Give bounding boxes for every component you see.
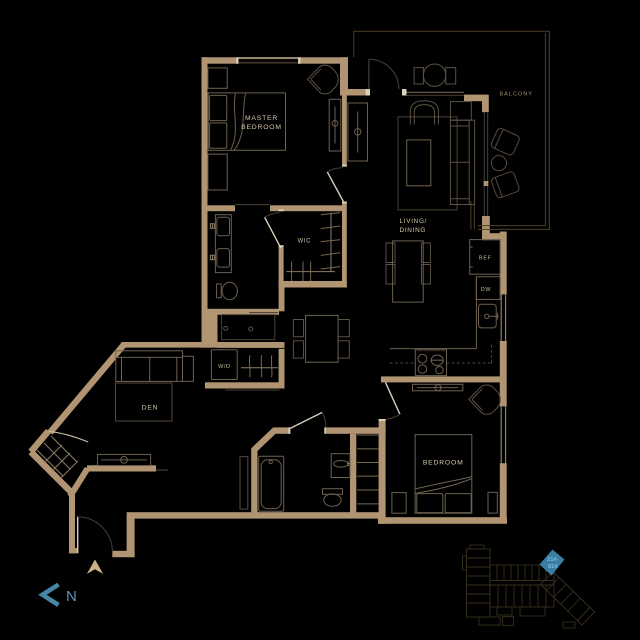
svg-text:N: N <box>66 588 77 605</box>
svg-text:DINING: DINING <box>400 227 427 234</box>
svg-text:814: 814 <box>548 564 558 570</box>
svg-text:BALCONY: BALCONY <box>499 91 532 97</box>
svg-text:BEDROOM: BEDROOM <box>423 459 464 466</box>
svg-text:214-: 214- <box>547 557 559 563</box>
svg-text:LIVING/: LIVING/ <box>400 218 428 225</box>
svg-text:MASTER: MASTER <box>245 115 278 122</box>
svg-text:DEN: DEN <box>142 404 159 411</box>
svg-text:W/D: W/D <box>218 364 230 370</box>
svg-text:REF: REF <box>479 256 492 262</box>
svg-text:WIC: WIC <box>298 239 312 245</box>
svg-text:DW: DW <box>481 287 492 293</box>
svg-text:BEDROOM: BEDROOM <box>241 124 282 131</box>
